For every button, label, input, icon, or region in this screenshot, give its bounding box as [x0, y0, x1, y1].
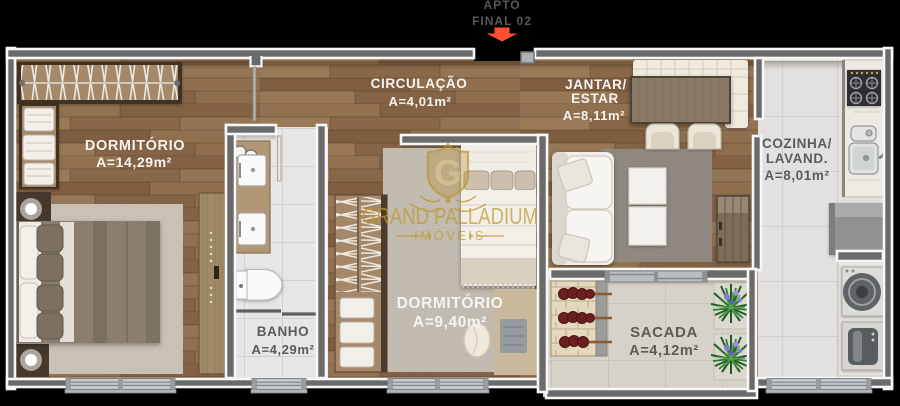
- svg-text:A=4,12m²: A=4,12m²: [629, 343, 699, 359]
- svg-text:JANTAR/: JANTAR/: [565, 77, 627, 92]
- svg-text:CIRCULAÇÃO: CIRCULAÇÃO: [371, 76, 468, 91]
- svg-text:A=9,40m²: A=9,40m²: [413, 314, 487, 331]
- svg-text:SACADA: SACADA: [630, 324, 698, 341]
- svg-text:DORMITÓRIO: DORMITÓRIO: [397, 294, 504, 312]
- svg-text:A=4,01m²: A=4,01m²: [389, 94, 452, 109]
- svg-text:A=4,29m²: A=4,29m²: [252, 342, 315, 357]
- svg-text:ESTAR: ESTAR: [571, 91, 619, 106]
- svg-text:A=8,11m²: A=8,11m²: [563, 108, 625, 123]
- svg-text:G: G: [434, 152, 462, 193]
- svg-text:GRAND PALLADIUM: GRAND PALLADIUM: [362, 203, 538, 229]
- svg-text:DORMITÓRIO: DORMITÓRIO: [85, 136, 185, 154]
- svg-text:COZINHA/: COZINHA/: [762, 136, 832, 151]
- svg-text:A=14,29m²: A=14,29m²: [96, 154, 172, 170]
- svg-text:BANHO: BANHO: [257, 324, 310, 339]
- svg-text:FINAL 02: FINAL 02: [472, 14, 532, 28]
- svg-text:APTO: APTO: [483, 0, 520, 12]
- svg-text:LAVAND.: LAVAND.: [766, 151, 828, 166]
- svg-text:A=8,01m²: A=8,01m²: [764, 168, 829, 183]
- svg-text:IMÓVEIS: IMÓVEIS: [414, 228, 486, 243]
